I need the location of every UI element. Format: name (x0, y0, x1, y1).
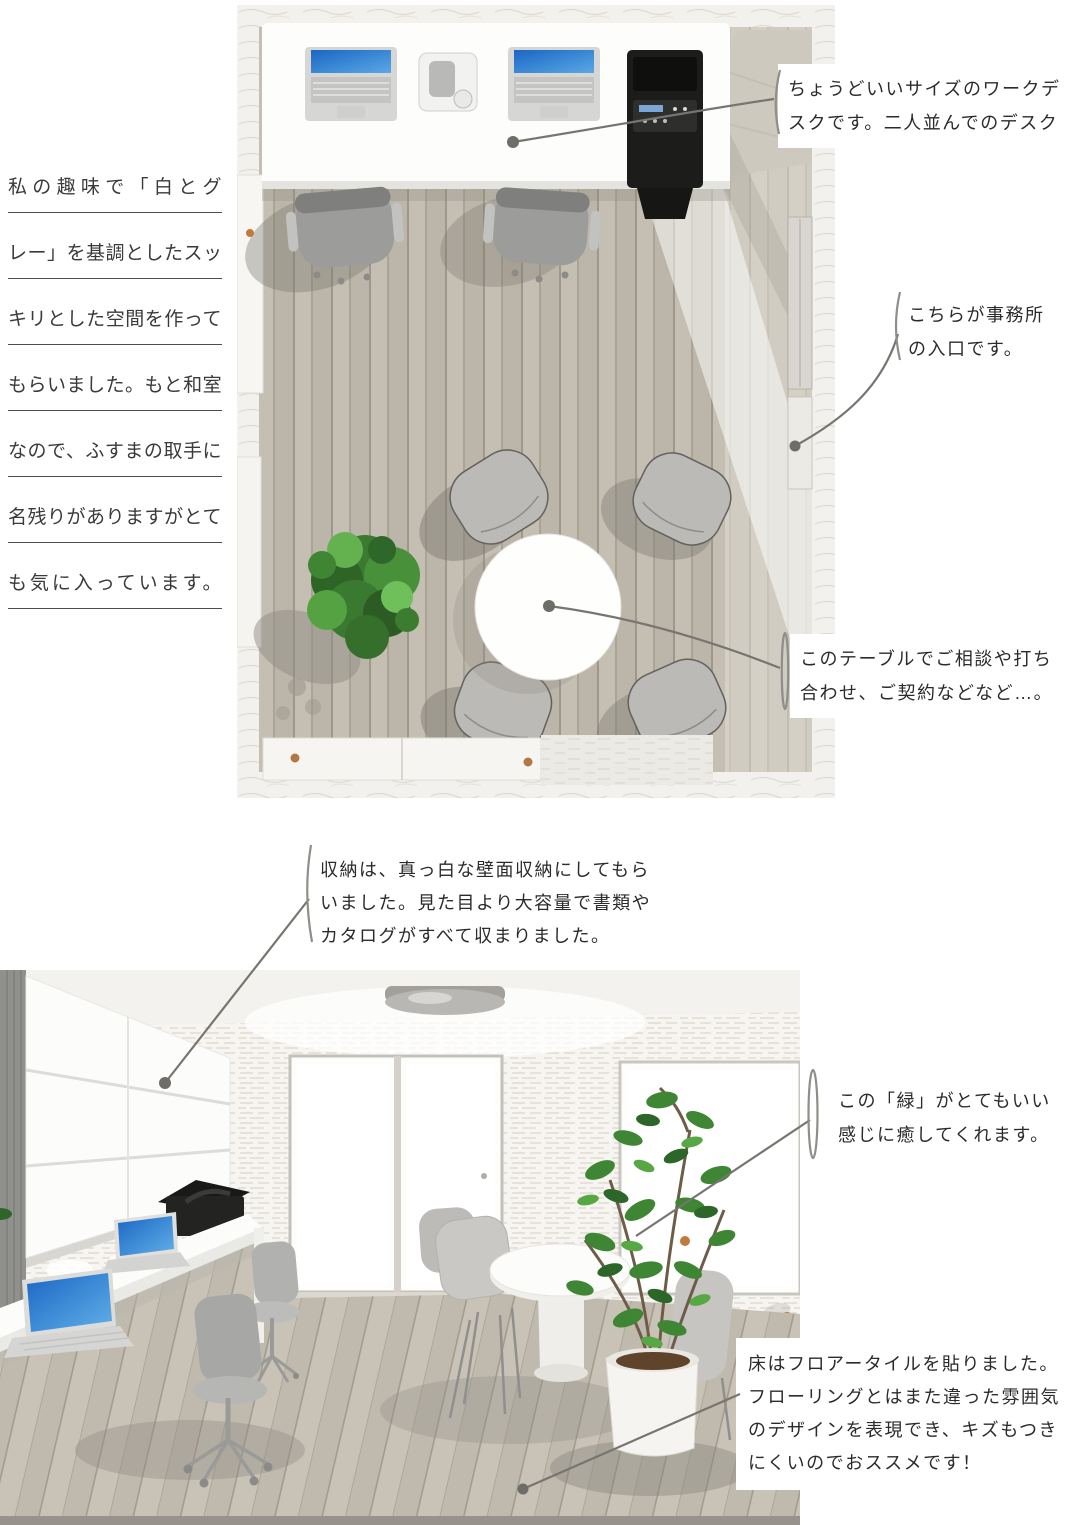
closet-sliding-doors (263, 738, 541, 780)
annotation-line: 合わせ、ご契約などなど…。 (800, 676, 1053, 710)
entry-tile (541, 735, 713, 785)
annotation-line: こちらが事務所 (908, 298, 1045, 332)
annotation-line: 収納は、真っ白な壁面収納にしてもら (320, 854, 651, 887)
bracket-storage (307, 845, 312, 942)
annotation-work-desk: ちょうどいいサイズのワークデ スクです。二人並んでのデスク (778, 64, 1065, 148)
annotation-line: カタログがすべて収まりました。 (320, 920, 651, 953)
floor-shadow (380, 1376, 640, 1444)
perspective-render-image (0, 970, 800, 1525)
bracket-green (809, 1070, 818, 1158)
fusuma-handle (291, 754, 300, 763)
comment-line: なので、ふすまの取手に (8, 440, 222, 477)
laptop (508, 47, 600, 121)
comment-line: もらいました。もと和室 (8, 374, 222, 411)
annotation-storage: 収納は、真っ白な壁面収納にしてもら いました。見た目より大容量で書類や カタログ… (318, 850, 653, 957)
article-page: 私の趣味で「白とグ レー」を基調としたスッ キリとした空間を作って もらいました… (0, 0, 1065, 1525)
annotation-entrance: こちらが事務所 の入口です。 (906, 294, 1047, 370)
comment-line: レー」を基調としたスッ (8, 242, 222, 279)
annotation-line: ちょうどいいサイズのワークデ (788, 72, 1060, 106)
comment-line: 名残りがありますがとて (8, 506, 222, 543)
comment-line: キリとした空間を作って (8, 308, 222, 345)
entrance-door (788, 217, 812, 489)
owner-comment: 私の趣味で「白とグ レー」を基調としたスッ キリとした空間を作って もらいました… (8, 176, 226, 638)
scanner-device (419, 53, 477, 111)
annotation-line: スクです。二人並んでのデスク (788, 106, 1060, 140)
annotation-line: フローリングとはまた違った雰囲気 (748, 1381, 1060, 1414)
annotation-line: のデザインを表現でき、キズもつき (748, 1414, 1060, 1447)
annotation-line: 感じに癒してくれます。 (838, 1118, 1051, 1152)
annotation-line: 床はフロアータイルを貼りました。 (748, 1348, 1060, 1381)
annotation-line: いました。見た目より大容量で書類や (320, 887, 651, 920)
annotation-floor-tile: 床はフロアータイルを貼りました。 フローリングとはまた違った雰囲気 のデザインを… (736, 1338, 1065, 1490)
annotation-greenery: この「緑」がとてもいい 感じに癒してくれます。 (836, 1080, 1053, 1156)
door-handle (481, 1173, 487, 1179)
annotation-line: の入口です。 (908, 332, 1045, 366)
laptop (305, 47, 397, 121)
annotation-line: にくいのでおススメです！ (748, 1447, 1060, 1480)
annotation-meeting-table: このテーブルでご相談や打ち 合わせ、ご契約などなど…。 (790, 634, 1063, 718)
wall-handle (680, 1236, 690, 1246)
fusuma-handle (524, 758, 533, 767)
bracket-entrance (896, 292, 900, 360)
annotation-line: このテーブルでご相談や打ち (800, 642, 1053, 676)
comment-line: も気に入っています。 (8, 572, 222, 609)
top-view-render-image (237, 5, 835, 798)
ceiling-light (385, 986, 505, 1015)
comment-line: 私の趣味で「白とグ (8, 176, 222, 213)
annotation-line: この「緑」がとてもいい (838, 1084, 1051, 1118)
floor-edge (0, 1516, 800, 1525)
